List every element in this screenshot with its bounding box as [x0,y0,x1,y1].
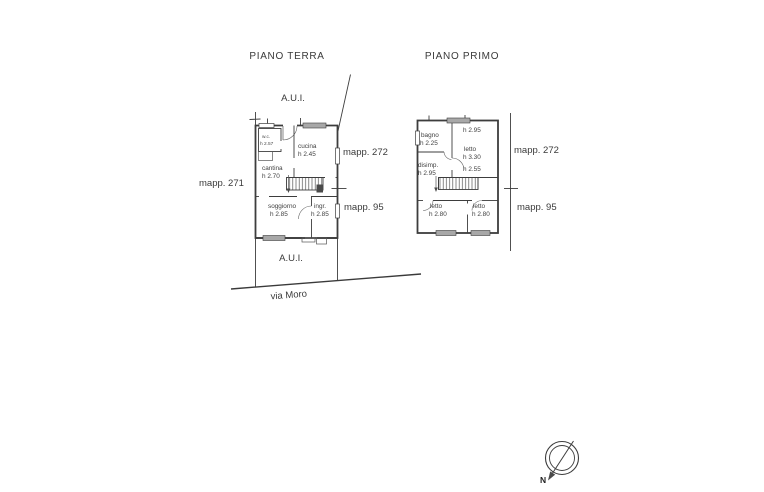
first-floor-plan: bagno h 2.25 h 2.95 letto h 3.30 h 2.55 … [416,118,499,236]
room-label-disimpegno: disimp. [418,162,438,169]
room-height-bottom-letto-grande: h 2.55 [463,166,481,173]
ground-floor-title: PIANO TERRA [249,51,324,62]
street-label: via Moro [270,289,307,303]
room-label-letto-grande: letto [464,146,477,153]
room-height-bagno: h 2.25 [420,140,438,147]
ground-window-top [303,123,326,128]
room-height-letto-sx: h 2.80 [429,211,447,218]
mapp-95-ground-label: mapp. 95 [344,202,384,213]
room-label-wc: w.c. [262,135,270,140]
road: via Moro [231,274,421,302]
aui-bottom-label: A.U.I. [279,253,303,264]
first-window-top [447,118,470,123]
room-height-wc: h 2.57 [260,141,274,147]
room-label-soggiorno: soggiorno [268,203,297,210]
document-page: PIANO TERRA PIANO PRIMO A.U.I. A.U.I. ma… [0,0,764,492]
floor-plan-canvas: PIANO TERRA PIANO PRIMO A.U.I. A.U.I. ma… [0,0,764,492]
first-floor-title: PIANO PRIMO [425,51,499,62]
letto-dx-window [471,231,490,236]
mapp-95-first-label: mapp. 95 [517,202,557,213]
room-height-top-letto-grande: h 2.95 [463,127,481,134]
mapp-271-label: mapp. 271 [199,178,244,189]
ingresso-side-window [336,204,340,218]
room-label-letto-dx: letto [473,203,486,210]
room-label-cucina: cucina [298,143,317,150]
letto-sx-window [436,231,456,236]
room-height-soggiorno: h 2.85 [270,211,288,218]
room-height-letto-dx: h 2.80 [472,211,490,218]
wc-window [259,124,274,128]
room-label-ingresso: ingr. [314,203,326,210]
parcel-labels: A.U.I. A.U.I. mapp. 271 mapp. 272 mapp. … [199,93,559,264]
room-label-bagno: bagno [421,132,439,139]
room-height-disimpegno: h 2.95 [418,170,436,177]
room-label-cantina: cantina [262,165,283,172]
room-height-ingresso: h 2.85 [311,211,329,218]
aui-top-label: A.U.I. [281,93,305,104]
mapp-272-first-label: mapp. 272 [514,145,559,156]
ground-floor-stairs [287,175,324,193]
room-height-cantina: h 2.70 [262,173,280,180]
mapp-272-ground-label: mapp. 272 [343,147,388,158]
room-height-letto-grande: h 3.30 [463,154,481,161]
cucina-side-window [336,148,340,164]
room-height-cucina: h 2.45 [298,151,316,158]
room-label-letto-sx: letto [430,203,443,210]
soggiorno-window [263,236,285,241]
north-label: N [540,475,546,485]
compass-icon: N [540,441,579,485]
ground-floor-plan: w.c. h 2.57 cucina h 2.45 cantina h 2.70… [256,123,340,244]
first-floor-stairs [434,176,478,192]
bagno-side-window [416,131,420,145]
